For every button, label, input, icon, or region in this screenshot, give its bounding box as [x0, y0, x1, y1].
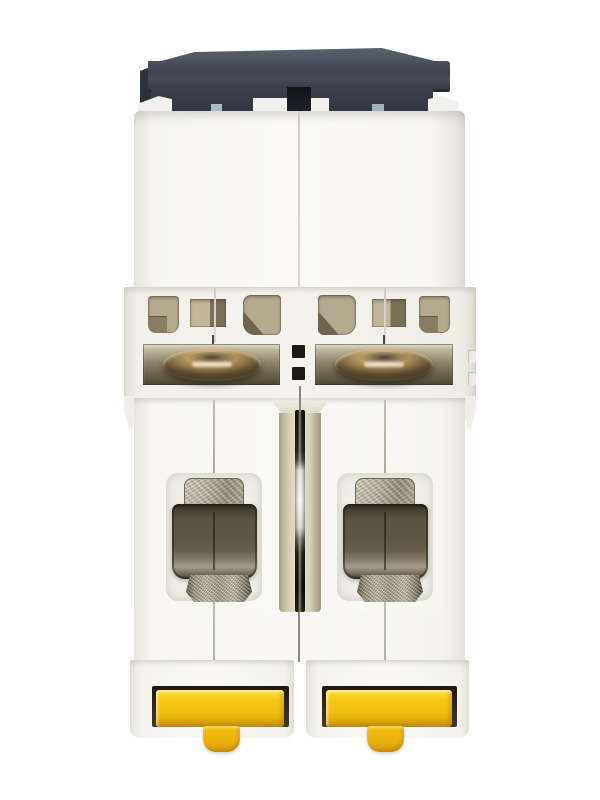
- side-notch-right: [464, 396, 476, 432]
- center-mark-bottom: [292, 367, 305, 380]
- channel-pin: [295, 410, 305, 612]
- center-seam-lower: [298, 612, 300, 662]
- pole-seam-above-terminal-right: [384, 400, 386, 474]
- din-clip-bar-right: [326, 690, 452, 727]
- terminal-metal-bottom-right: [357, 575, 423, 602]
- screw-shine-right: [364, 362, 403, 367]
- center-seam-upper: [298, 111, 300, 288]
- din-clip-tab-right: [367, 726, 404, 752]
- screw-slot-left: [143, 344, 280, 385]
- vent-opening-c-left: [243, 295, 281, 335]
- right-edge-nub-top: [468, 350, 476, 363]
- center-mark-top: [292, 345, 305, 358]
- pole-seam-above-terminal-left: [213, 400, 215, 474]
- right-edge-nub-bottom: [468, 372, 476, 385]
- vent-opening-a-left: [148, 296, 179, 333]
- circuit-breaker-photo: [0, 0, 600, 800]
- screw-shine-left: [192, 362, 231, 367]
- terminal-divider-right: [384, 512, 386, 570]
- screw-head-left: [163, 348, 261, 381]
- vent-opening-b-right: [372, 299, 406, 327]
- screw-head-right: [335, 348, 433, 381]
- terminal-divider-left: [213, 512, 215, 570]
- vent-opening-b-left: [190, 299, 226, 327]
- screw-slot-right: [315, 344, 453, 385]
- channel-pin-top: [299, 386, 301, 412]
- pole-seam-vent-left: [214, 288, 216, 343]
- din-clip-bar-left: [156, 690, 284, 727]
- vent-opening-a-right: [419, 296, 450, 333]
- terminal-metal-bottom-left: [186, 575, 252, 602]
- vent-opening-c-right: [318, 295, 356, 335]
- din-clip-tab-left: [203, 726, 240, 752]
